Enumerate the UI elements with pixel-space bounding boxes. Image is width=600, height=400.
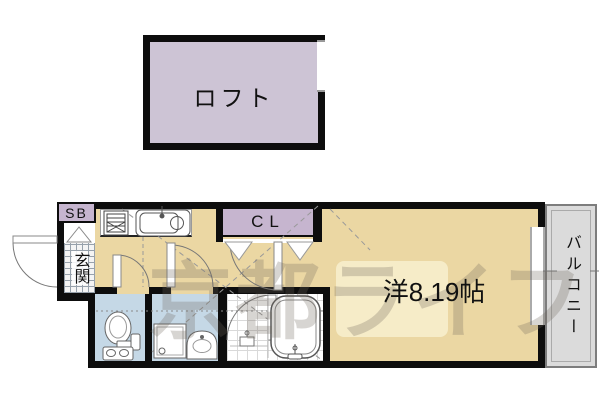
bathtub-icon (271, 296, 320, 359)
shower-mixer-icon (230, 296, 268, 358)
washroom-door (167, 243, 213, 287)
door-swing-chevron-icon (67, 227, 91, 242)
stove-icon (104, 211, 128, 235)
loft-label: ロフト (143, 79, 325, 113)
washing-machine-icon (154, 324, 186, 358)
kitchen-sink-icon (136, 206, 190, 236)
toilet-door (113, 255, 149, 287)
fixtures-and-doors (0, 0, 600, 400)
entrance-door (13, 227, 91, 287)
floorplan-canvas: バルコニー SB 玄関 CL (0, 0, 600, 400)
toilet-icon (103, 312, 140, 360)
washbasin-icon (187, 331, 217, 359)
closet-folding-door-icon (225, 242, 313, 260)
bathroom-door (227, 295, 276, 340)
mainroom-label: 洋8.19帖 (330, 272, 538, 309)
